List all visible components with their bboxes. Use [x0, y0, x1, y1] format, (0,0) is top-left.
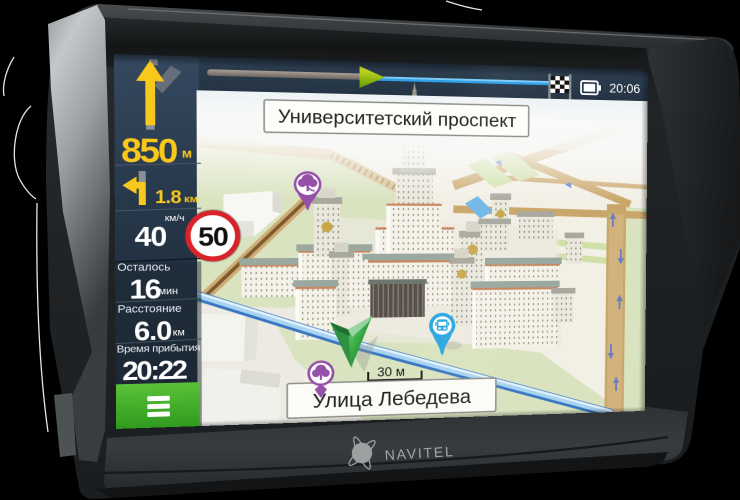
- svg-text:Университетский проспект: Университетский проспект: [278, 106, 517, 131]
- svg-text:20:06: 20:06: [609, 82, 640, 97]
- svg-text:30 м: 30 м: [377, 365, 405, 380]
